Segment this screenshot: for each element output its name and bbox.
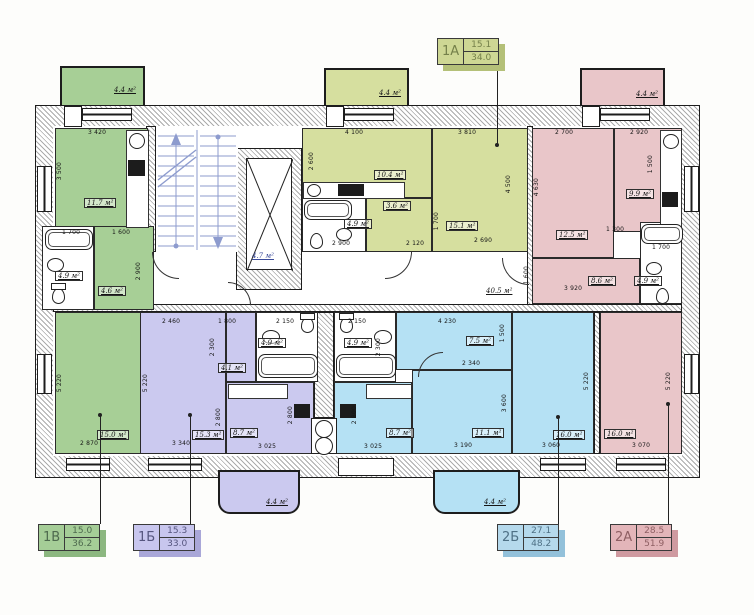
dimension: 3 420 — [88, 130, 106, 136]
dimension: 1 500 — [500, 324, 506, 342]
dimension: 1 500 — [648, 155, 654, 173]
dimension: 3 070 — [632, 443, 650, 449]
dimension: 5 220 — [584, 372, 590, 390]
area-label-bath-1b: 4.9 м² — [258, 338, 286, 348]
entry-porch — [338, 458, 394, 476]
apartment-id: 1В — [39, 525, 65, 550]
leader-dot — [188, 413, 192, 417]
window — [148, 458, 202, 471]
leader-dot — [666, 402, 670, 406]
stove-symbol — [294, 404, 310, 418]
dimension: 2 920 — [630, 130, 648, 136]
area-label-living-1b: 15.3 м² — [192, 430, 224, 440]
dimension: 2 300 — [376, 338, 382, 356]
dimension: 2 300 — [210, 338, 216, 356]
floor-plan: 3 420 3 500 1 700 1 600 2 900 4 100 3 81… — [0, 0, 754, 615]
area-label-corridor: 40.5 м² — [484, 287, 514, 295]
bathtub-symbol — [641, 224, 683, 244]
sink-symbol — [307, 184, 321, 197]
stove-symbol — [662, 192, 678, 207]
dimension: 2 700 — [555, 130, 573, 136]
area-label-hall-1a: 3.6 м² — [383, 201, 411, 211]
balcony-1b[interactable] — [218, 470, 300, 514]
dimension: 2 800 — [288, 406, 294, 424]
dimension: 2 150 — [276, 319, 294, 325]
area-label-living-2a: 16.0 м² — [604, 429, 636, 439]
sink-symbol — [47, 258, 64, 272]
apartment-tag-2a[interactable]: 2А 28.5 51.9 — [610, 524, 672, 551]
living-area: 15.3 — [160, 525, 194, 538]
total-area: 48.2 — [524, 538, 558, 550]
dimension: 3 600 — [502, 394, 508, 412]
window — [344, 108, 394, 121]
toilet-symbol — [656, 288, 669, 304]
area-label-balcony: 4.4 м² — [112, 86, 138, 94]
balcony-2b[interactable] — [433, 470, 520, 514]
dimension: 5 220 — [666, 372, 672, 390]
dimension: 1 600 — [112, 230, 130, 236]
dimension: 2 460 — [162, 319, 180, 325]
bathtub-symbol — [304, 200, 352, 220]
leader-dot — [495, 143, 499, 147]
leader-dot — [556, 415, 560, 419]
window — [616, 458, 666, 471]
area-label-kitchen-1a: 10.4 м² — [374, 170, 406, 180]
dimension: 3 190 — [454, 443, 472, 449]
dimension: 2 900 — [136, 262, 142, 280]
vent-circle-symbol — [315, 437, 333, 455]
area-label-room1-2a: 12.5 м² — [556, 230, 588, 240]
dimension: 1 700 — [62, 230, 80, 236]
dimension: 3 025 — [258, 444, 276, 450]
dimension: 2 900 — [332, 241, 350, 247]
dimension: 1 300 — [606, 227, 624, 233]
window — [684, 354, 699, 394]
area-label-bath-2a: 4.9 м² — [634, 276, 662, 286]
balcony-door — [582, 106, 600, 127]
leader-line-1v — [100, 415, 101, 524]
area-label-bath-2b: 4.9 м² — [344, 338, 372, 348]
dimension: 5 220 — [57, 374, 63, 392]
window — [66, 458, 110, 471]
toilet-tank-symbol — [51, 283, 66, 290]
sink-symbol — [663, 134, 679, 149]
dimension: 4 230 — [438, 319, 456, 325]
area-label-hall-1v: 4.6 м² — [98, 286, 126, 296]
area-label-kitchen-2a: 9.9 м² — [626, 189, 654, 199]
area-label-hall-2b: 7.5 м² — [466, 336, 494, 346]
stairs-symbol — [156, 128, 238, 252]
sink-symbol — [129, 133, 145, 149]
sink-symbol — [646, 262, 662, 275]
stairwell — [156, 128, 238, 252]
kitchen-counter-1b — [228, 384, 288, 399]
area-label-kitchen-1v: 11.7 м² — [84, 198, 116, 208]
area-label-kitchen-2b: 8.7 м² — [386, 428, 414, 438]
dimension: 2 690 — [474, 238, 492, 244]
dimension: 2 340 — [462, 361, 480, 367]
balcony-2a[interactable] — [580, 68, 665, 110]
dimension: 1 700 — [434, 212, 440, 230]
room2-2a[interactable] — [532, 258, 640, 304]
dimension: 3 500 — [57, 162, 63, 180]
area-label-bath-1v: 4.9 м² — [55, 271, 83, 281]
dimension: 1 800 — [218, 319, 236, 325]
dimension: 2 800 — [216, 408, 222, 426]
total-area: 33.0 — [160, 538, 194, 550]
area-label-elevator: 4.7 м² — [250, 252, 276, 260]
apartment-id: 1А — [438, 39, 464, 64]
dimension: 2 800 — [352, 406, 358, 424]
dimension: 5 220 — [143, 374, 149, 392]
leader-line-1b — [190, 415, 191, 524]
dimension: 1 700 — [652, 245, 670, 251]
window — [82, 108, 132, 121]
room-hall-1v[interactable] — [94, 226, 154, 310]
kitchen-counter-2b — [366, 384, 412, 399]
area-label-balcony: 4.4 м² — [482, 498, 508, 506]
apartment-tag-1b[interactable]: 1Б 15.3 33.0 — [133, 524, 195, 551]
apartment-tag-2b[interactable]: 2Б 27.1 48.2 — [497, 524, 559, 551]
area-label-living-1a: 15.1 м² — [446, 221, 478, 231]
window — [684, 166, 699, 212]
dimension: 1 600 — [524, 266, 530, 284]
leader-line-2a — [668, 404, 669, 524]
living-area: 28.5 — [637, 525, 671, 538]
area-label-living-1v: 15.0 м² — [97, 430, 129, 440]
dimension: 4 630 — [534, 178, 540, 196]
total-area: 51.9 — [637, 538, 671, 550]
area-label-kitchen-1b: 8.7 м² — [230, 428, 258, 438]
area-label-balcony: 4.4 м² — [634, 90, 660, 98]
area-label-balcony: 4.4 м² — [264, 498, 290, 506]
toilet-tank-symbol — [300, 313, 315, 320]
dimension: 4 500 — [506, 175, 512, 193]
dimension: 2 120 — [406, 241, 424, 247]
apartment-id: 2Б — [498, 525, 524, 550]
bathtub-symbol — [336, 354, 396, 378]
bathtub-symbol — [258, 354, 318, 378]
window — [600, 108, 650, 121]
apartment-id: 1Б — [134, 525, 160, 550]
window — [37, 166, 52, 212]
dimension: 2 150 — [348, 319, 366, 325]
room-living-1a[interactable] — [432, 128, 528, 252]
apartment-id: 2А — [611, 525, 637, 550]
dimension: 3 810 — [458, 130, 476, 136]
living-area: 27.1 — [524, 525, 558, 538]
dimension: 3 340 — [172, 441, 190, 447]
apartment-tag-1v[interactable]: 1В 15.0 36.2 — [38, 524, 100, 551]
area-label-balcony: 4.4 м² — [377, 89, 403, 97]
leader-line-2b — [558, 417, 559, 524]
total-area: 36.2 — [65, 538, 99, 550]
apartment-tag-1a[interactable]: 1А 15.1 34.0 — [437, 38, 499, 65]
window — [37, 354, 52, 394]
dimension: 4 100 — [345, 130, 363, 136]
area-label-hall-1b: 4.1 м² — [218, 363, 246, 373]
balcony-door — [326, 106, 344, 127]
leader-dot — [98, 413, 102, 417]
toilet-symbol — [52, 288, 65, 304]
toilet-symbol — [310, 233, 323, 249]
dimension: 2 600 — [309, 152, 315, 170]
stove-symbol — [338, 184, 364, 196]
total-area: 34.0 — [464, 52, 498, 64]
dimension: 2 870 — [80, 441, 98, 447]
vent-circle-symbol — [315, 420, 333, 438]
dimension: 3 025 — [364, 444, 382, 450]
stove-symbol — [128, 160, 145, 176]
living-area: 15.1 — [464, 39, 498, 52]
area-label-room-2b: 11.1 м² — [472, 428, 504, 438]
dimension: 3 920 — [564, 286, 582, 292]
living-area: 15.0 — [65, 525, 99, 538]
window — [540, 458, 586, 471]
area-label-room2-2a: 8.6 м² — [588, 276, 616, 286]
area-label-bath-1a: 4.9 м² — [344, 219, 372, 229]
balcony-door — [64, 106, 82, 127]
leader-line-1a — [497, 64, 498, 145]
